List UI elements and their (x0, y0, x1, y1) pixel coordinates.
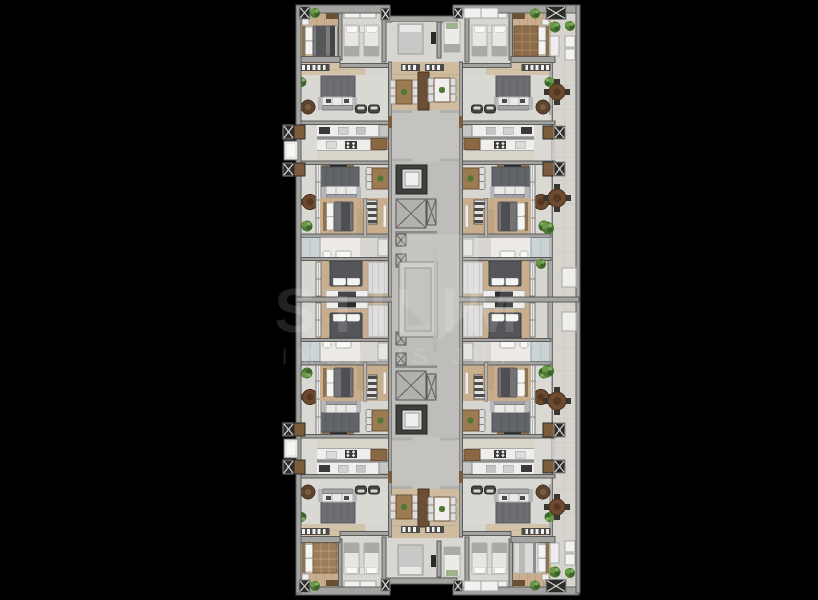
svg-text:IMOVEIS JUT: IMOVEIS JUT (281, 344, 518, 369)
svg-text:STILIM: STILIM (274, 277, 525, 346)
